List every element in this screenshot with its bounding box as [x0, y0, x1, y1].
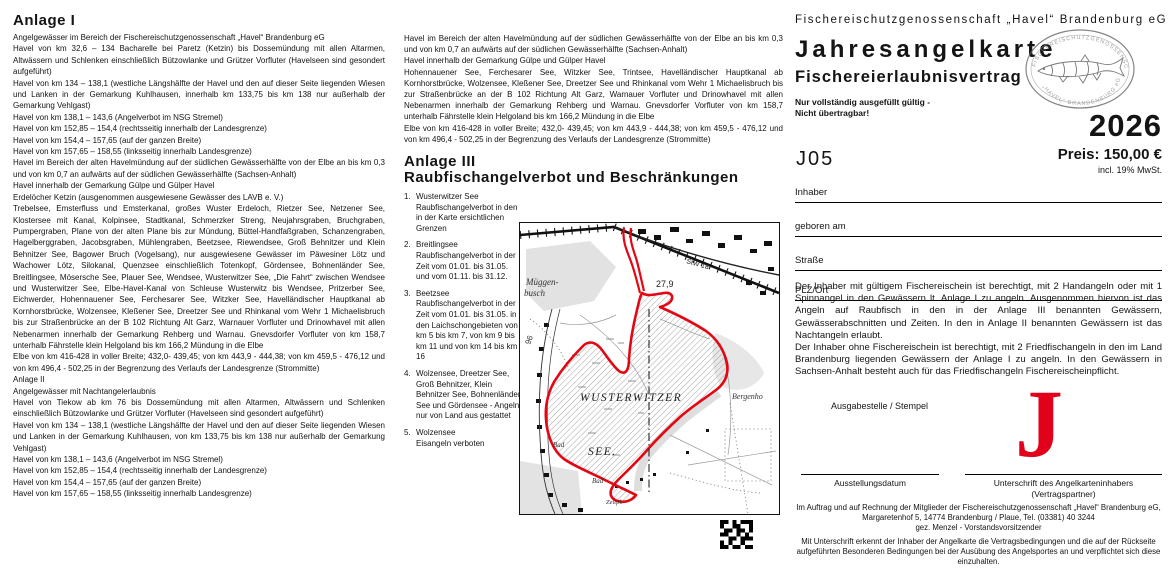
- fish-illustration: [1038, 55, 1124, 83]
- list-item: 2. Breitlingsee Raubfischangelverbot in …: [404, 240, 522, 282]
- form-field-label: Inhaber: [795, 187, 827, 198]
- map-label-bad-1: Bad: [553, 441, 565, 449]
- vat-note: incl. 19% MwSt.: [1058, 165, 1162, 175]
- paragraph: Havel im Bereich der alten Havelmündung …: [404, 33, 783, 55]
- paragraph: Havel von km 138,1 – 143,6 (Angelverbot …: [13, 112, 385, 123]
- list-item-text: Breitlingsee Raubfischangelverbot in der…: [416, 240, 522, 282]
- validity-note: Nur vollständig ausgefüllt gültig - Nich…: [795, 97, 930, 119]
- list-item-text: Wolzensee Eisangeln verboten: [416, 428, 522, 449]
- form-field-line: Straße: [795, 250, 1162, 271]
- map-label-zeltplatz: Zeltpl.: [606, 499, 623, 506]
- anlage3-subtitle: Raubfischangelverbot und Beschränkungen: [404, 170, 783, 186]
- card-title: Jahresangelkarte: [795, 36, 1056, 64]
- association-logo: FISCHEREISCHUTZGENOSSENSCHAFT „HAVEL“ BR…: [1023, 26, 1137, 112]
- list-item-number: 3.: [404, 289, 416, 363]
- map-label-lake-name: WUSTERWITZER: [580, 392, 682, 404]
- list-item-text: Wolzensee, Dreetzer See, Groß Behnitzer,…: [416, 369, 522, 422]
- svg-text:SEE.: SEE.: [588, 446, 617, 458]
- paragraph: Havel von km 134 – 138,1 (westliche Läng…: [13, 78, 385, 112]
- paragraph: Hohennauener See, Ferchesarer See, Witzk…: [404, 67, 783, 123]
- list-item: 4. Wolzensee, Dreetzer See, Groß Behnitz…: [404, 369, 522, 422]
- anlage3-rules-list: 1. Wusterwitzer See Raubfischangelverbot…: [404, 192, 522, 455]
- map-forest-area: [526, 241, 616, 311]
- paragraph: Havel von km 152,85 – 154,4 (rechtsseiti…: [13, 123, 385, 134]
- paragraph: Havel von km 152,85 – 154,4 (rechtsseiti…: [13, 465, 385, 476]
- issue-date-label: Ausstellungsdatum: [801, 478, 939, 489]
- form-field-label: geboren am: [795, 221, 846, 232]
- list-item: 3. Beetzsee Raubfischangelverbot in der …: [404, 289, 522, 363]
- paragraph: Elbe von km 416-428 in voller Breite; 43…: [13, 351, 385, 374]
- paragraph: Trebelsee, Emsterfluss und Emsterkanal, …: [13, 203, 385, 351]
- card-subtitle: Fischereierlaubnisvertrag: [795, 68, 1022, 87]
- list-item-number: 4.: [404, 369, 416, 422]
- license-terms: Der Inhaber mit gültigem Fischereischein…: [795, 281, 1162, 379]
- map-label-96: 96: [523, 334, 535, 346]
- anlage3-heading-block: Anlage III Raubfischangelverbot und Besc…: [404, 154, 783, 186]
- paragraph: Havel von km 138,1 – 143,6 (Angelverbot …: [13, 454, 385, 465]
- paragraph: Elbe von km 416-428 in voller Breite; 43…: [404, 123, 783, 145]
- list-item-number: 1.: [404, 192, 416, 234]
- footer-signatory: gez. Menzel - Vorstandsvorsitzender: [795, 523, 1162, 533]
- price-block: Preis: 150,00 € incl. 19% MwSt.: [1058, 146, 1162, 175]
- paragraph: Havel von km 154,4 – 157,65 (auf der gan…: [13, 135, 385, 146]
- map-image: Müggen- busch 27,9 StW 18 96 WUSTERWITZE…: [520, 223, 779, 514]
- wusterwitzer-see-map: Müggen- busch 27,9 StW 18 96 WUSTERWITZE…: [519, 222, 780, 515]
- paragraph: Havel innerhalb der Gemarkung Gülpe und …: [404, 55, 783, 66]
- paragraph: Havel innerhalb der Gemarkung Gülpe und …: [13, 180, 385, 191]
- card-footer: Im Auftrag und auf Rechnung der Mitglied…: [795, 503, 1162, 567]
- holder-signature-line: Unterschrift des Angelkarteninhabers (Ve…: [965, 474, 1162, 499]
- column-anlage-1: Anlage I Angelgewässer im Bereich der Fi…: [13, 0, 385, 500]
- paragraph: Angelgewässer mit Nachtangelerlaubnis: [13, 386, 385, 397]
- anlage1-heading: Anlage I: [13, 12, 385, 29]
- paragraph: Havel im Bereich der alten Havelmündung …: [13, 157, 385, 180]
- paragraph: Erdelöcher Ketzin (ausgenommen ausgewies…: [13, 192, 385, 203]
- terms-paragraph-2: Der Inhaber ohne Fischereischein ist ber…: [795, 342, 1162, 379]
- paragraph: Havel von km 32,6 – 134 Bacharelle bei P…: [13, 43, 385, 77]
- footer-conditions: Mit Unterschrift erkennt der Inhaber der…: [795, 537, 1162, 566]
- document-page: Anlage I Angelgewässer im Bereich der Fi…: [0, 0, 1170, 583]
- organization-name: Fischereischutzgenossenschaft „Havel“ Br…: [795, 14, 1167, 26]
- holder-signature-label: Unterschrift des Angelkarteninhabers: [965, 478, 1162, 489]
- postal-datamatrix-code: [720, 520, 753, 551]
- card-serial-code: J05: [796, 148, 834, 171]
- footer-issuer: Im Auftrag und auf Rechnung der Mitglied…: [795, 503, 1162, 523]
- holder-signature-sublabel: (Vertragspartner): [965, 489, 1162, 500]
- issue-date-signature-line: Ausstellungsdatum: [801, 474, 939, 489]
- form-field-label: Straße: [795, 255, 824, 266]
- map-label-bad-2: Bad: [592, 477, 604, 485]
- map-label-bergenhof: Bergenho: [732, 392, 763, 401]
- stamp-area-label: Ausgabestelle / Stempel: [831, 401, 928, 411]
- anlage1-continuation: Havel im Bereich der alten Havelmündung …: [404, 33, 783, 145]
- svg-text:busch: busch: [524, 288, 545, 298]
- paragraph: Havel von km 157,65 – 158,55 (linksseiti…: [13, 488, 385, 499]
- terms-paragraph-1: Der Inhaber mit gültigem Fischereischein…: [795, 281, 1162, 342]
- paragraph: Havel von km 157,65 – 158,55 (linksseiti…: [13, 146, 385, 157]
- paragraph: Angelgewässer im Bereich der Fischereisc…: [13, 32, 385, 43]
- list-item-text: Wusterwitzer See Raubfischangelverbot in…: [416, 192, 522, 234]
- list-item-number: 5.: [404, 428, 416, 449]
- license-card: Fischereischutzgenossenschaft „Havel“ Br…: [795, 0, 1162, 583]
- form-field-line: Inhaber: [795, 182, 1162, 203]
- map-label-mueggenbusch: Müggen-: [525, 277, 559, 287]
- paragraph: Havel von Tiekow ab km 76 bis Dossemündu…: [13, 397, 385, 420]
- list-item: 5. Wolzensee Eisangeln verboten: [404, 428, 522, 449]
- list-item-text: Beetzsee Raubfischangelverbot in der Zei…: [416, 289, 522, 363]
- map-label-stw: StW 18: [685, 258, 709, 271]
- paragraph: Havel von km 154,4 – 157,65 (auf der gan…: [13, 477, 385, 488]
- form-field-line: geboren am: [795, 216, 1162, 237]
- anlage1-body: Angelgewässer im Bereich der Fischereisc…: [13, 32, 385, 500]
- price-label: Preis: 150,00 €: [1058, 146, 1162, 163]
- anlage3-heading: Anlage III: [404, 154, 783, 170]
- map-label-depth: 27,9: [656, 279, 674, 289]
- list-item-number: 2.: [404, 240, 416, 282]
- big-red-letter: J: [1015, 376, 1063, 472]
- paragraph: Havel von km 134 – 138,1 (westliche Läng…: [13, 420, 385, 454]
- paragraph: Anlage II: [13, 374, 385, 385]
- year-label: 2026: [1089, 108, 1162, 144]
- list-item: 1. Wusterwitzer See Raubfischangelverbot…: [404, 192, 522, 234]
